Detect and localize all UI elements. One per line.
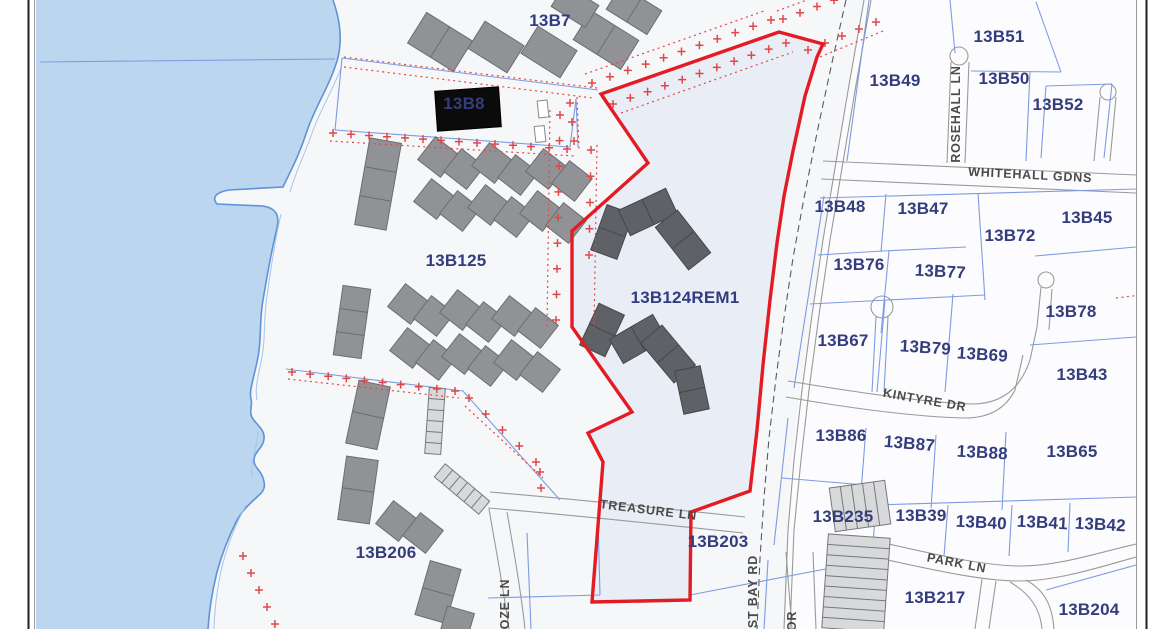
parcel-label-13b72: 13B72 <box>984 226 1035 245</box>
parcel-label-13b49: 13B49 <box>869 71 920 90</box>
parcel-label-13b8: 13B8 <box>443 94 484 113</box>
parcel-map-svg: 13B713B813B5113B4913B5013B5213B4813B4713… <box>0 0 1175 629</box>
parcel-label-13b39: 13B39 <box>895 506 946 525</box>
parcel-label-13b47: 13B47 <box>897 199 948 218</box>
parcel-label-13b76: 13B76 <box>833 255 884 274</box>
parcel-label-13b51: 13B51 <box>973 27 1024 46</box>
parcel-label-13b124rem1: 13B124REM1 <box>631 288 740 307</box>
parcel-label-13b7: 13B7 <box>529 11 570 30</box>
parcel-label-13b50: 13B50 <box>978 69 1029 88</box>
parcel-label-13b45: 13B45 <box>1061 208 1112 227</box>
parcel-label-13b41: 13B41 <box>1016 512 1068 534</box>
parcel-label-13b125: 13B125 <box>426 251 487 270</box>
parcel-label-13b235: 13B235 <box>813 507 874 526</box>
building <box>822 534 890 629</box>
street-label-rosehall-ln: ROSEHALL LN <box>949 65 963 162</box>
parcel-label-13b78: 13B78 <box>1045 302 1096 321</box>
parcel-label-13b217: 13B217 <box>905 588 966 607</box>
parcel-label-13b77: 13B77 <box>914 261 966 283</box>
parcel-label-13b65: 13B65 <box>1046 442 1097 461</box>
parcel-label-13b40: 13B40 <box>955 512 1007 534</box>
street-label-oze-ln: OZE LN <box>498 579 512 629</box>
parcel-label-13b52: 13B52 <box>1032 95 1083 114</box>
parcel-label-13b86: 13B86 <box>815 426 866 445</box>
parcel-label-13b206: 13B206 <box>356 543 417 562</box>
parcel-label-13b79: 13B79 <box>899 336 951 359</box>
building <box>537 100 549 118</box>
street-label-or: OR <box>785 611 799 629</box>
parcel-label-13b67: 13B67 <box>817 331 868 350</box>
parcel-label-13b88: 13B88 <box>956 442 1008 464</box>
parcel-label-13b203: 13B203 <box>688 532 749 551</box>
street-label-east-bay-rd: EAST BAY RD <box>746 555 760 629</box>
building <box>534 126 546 143</box>
map-viewport[interactable]: 13B713B813B5113B4913B5013B5213B4813B4713… <box>0 0 1175 629</box>
parcel-label-13b42: 13B42 <box>1074 514 1126 536</box>
parcel-label-13b69: 13B69 <box>956 343 1008 366</box>
parcel-label-13b204: 13B204 <box>1059 600 1120 619</box>
parcel-label-13b43: 13B43 <box>1056 365 1107 384</box>
parcel-label-13b48: 13B48 <box>814 197 865 216</box>
